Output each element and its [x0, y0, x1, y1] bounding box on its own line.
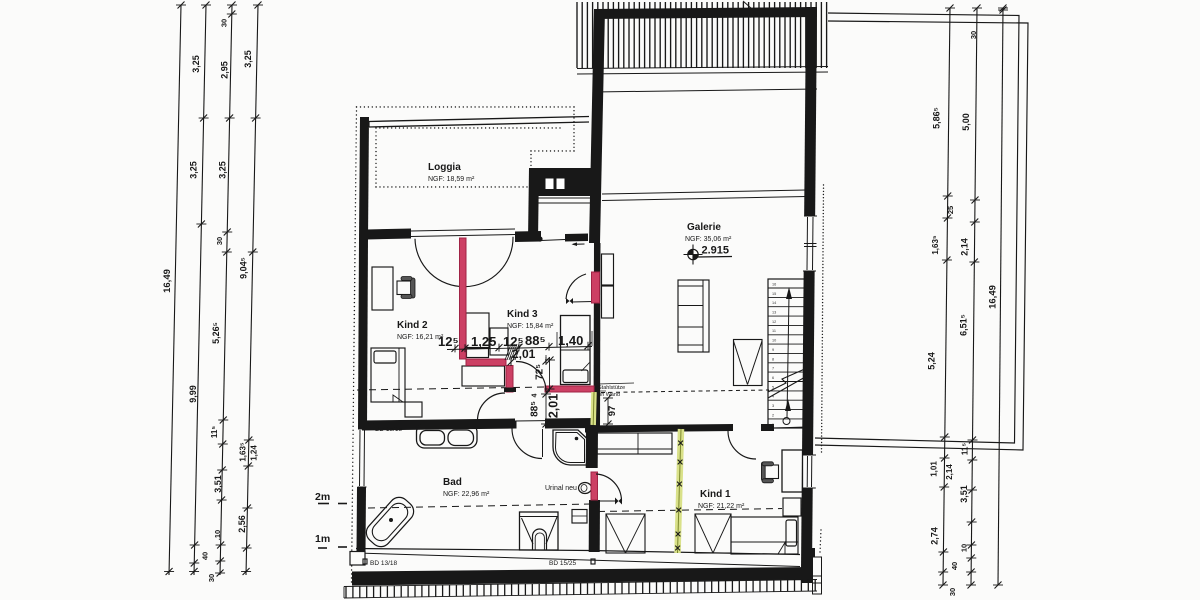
svg-text:11: 11: [772, 329, 776, 333]
svg-text:5,00: 5,00: [961, 113, 971, 131]
svg-text:3: 3: [772, 404, 774, 408]
svg-text:NGF: 18,59 m²: NGF: 18,59 m²: [428, 176, 475, 183]
svg-text:4: 4: [532, 393, 539, 397]
svg-text:3,25: 3,25: [191, 55, 201, 73]
svg-text:2,14: 2,14: [960, 238, 970, 256]
svg-text:2,74: 2,74: [930, 527, 940, 545]
svg-text:NGF: 22,96 m²: NGF: 22,96 m²: [443, 491, 490, 498]
svg-text:88⁵: 88⁵: [530, 401, 541, 417]
svg-text:12⁵: 12⁵: [438, 334, 459, 349]
svg-text:40: 40: [950, 562, 959, 570]
svg-text:Kind 3: Kind 3: [507, 309, 538, 320]
svg-text:97: 97: [607, 406, 618, 417]
svg-text:1,40: 1,40: [558, 333, 583, 348]
svg-text:1,63⁵: 1,63⁵: [931, 235, 940, 255]
svg-text:BD 15/15: BD 15/15: [375, 426, 402, 433]
svg-text:12: 12: [772, 320, 776, 324]
svg-text:1,24: 1,24: [250, 445, 259, 461]
svg-text:9,99: 9,99: [188, 385, 198, 403]
svg-text:Stahlstütze: Stahlstütze: [598, 385, 625, 391]
svg-text:2m: 2m: [315, 491, 330, 503]
svg-text:1m: 1m: [315, 533, 330, 545]
svg-text:6,51⁵: 6,51⁵: [959, 314, 969, 336]
svg-text:88⁵: 88⁵: [525, 333, 546, 348]
svg-text:NGF: 21,22 m²: NGF: 21,22 m²: [698, 503, 745, 510]
svg-text:10: 10: [959, 544, 968, 552]
svg-text:30: 30: [207, 574, 216, 582]
svg-text:30: 30: [215, 237, 224, 245]
svg-text:Loggia: Loggia: [428, 162, 461, 173]
svg-text:2,01: 2,01: [547, 394, 561, 418]
svg-text:1,25: 1,25: [471, 334, 496, 349]
svg-text:NGF: 15,84 m²: NGF: 15,84 m²: [507, 323, 554, 330]
svg-text:NGF: 16,21 m²: NGF: 16,21 m²: [397, 334, 444, 341]
svg-text:2: 2: [772, 413, 774, 417]
svg-text:2,95: 2,95: [220, 61, 230, 79]
svg-text:13: 13: [772, 311, 776, 315]
svg-text:BD 13/18: BD 13/18: [370, 560, 397, 567]
svg-text:2,56: 2,56: [237, 515, 247, 533]
svg-text:2.915: 2.915: [702, 245, 730, 257]
svg-text:9,04⁵: 9,04⁵: [238, 257, 248, 279]
svg-text:Kind 2: Kind 2: [397, 320, 428, 331]
svg-text:11⁵: 11⁵: [210, 426, 219, 438]
svg-text:14: 14: [772, 301, 776, 305]
svg-text:Bad: Bad: [443, 477, 462, 488]
svg-text:7: 7: [772, 367, 774, 371]
svg-text:1,01: 1,01: [929, 461, 938, 477]
svg-text:2,14: 2,14: [945, 464, 954, 480]
svg-text:Urinal neu: Urinal neu: [545, 485, 577, 492]
svg-text:Galerie: Galerie: [687, 222, 721, 233]
svg-text:16: 16: [772, 283, 776, 287]
svg-text:15: 15: [772, 292, 776, 296]
svg-text:3,25: 3,25: [218, 161, 228, 179]
svg-text:5,24: 5,24: [927, 352, 937, 370]
svg-text:NGF: 35,06 m²: NGF: 35,06 m²: [685, 236, 732, 243]
svg-text:72⁵: 72⁵: [535, 364, 546, 380]
svg-text:30: 30: [969, 31, 978, 39]
svg-text:3,25: 3,25: [243, 50, 253, 68]
svg-text:3,25: 3,25: [189, 161, 199, 179]
svg-text:6: 6: [772, 376, 774, 380]
svg-text:1: 1: [772, 423, 774, 427]
svg-text:in Wand: in Wand: [600, 392, 620, 398]
svg-text:40: 40: [200, 552, 209, 560]
svg-text:1,63⁵: 1,63⁵: [239, 442, 248, 462]
svg-text:16,49: 16,49: [987, 285, 998, 309]
svg-text:10: 10: [772, 339, 776, 343]
svg-text:8: 8: [772, 357, 774, 361]
svg-text:25: 25: [946, 206, 955, 214]
svg-text:30: 30: [948, 588, 957, 596]
svg-text:Kind 1: Kind 1: [700, 489, 731, 500]
svg-text:5,26⁵: 5,26⁵: [211, 322, 221, 344]
svg-text:3,51: 3,51: [959, 485, 969, 503]
svg-text:3,51: 3,51: [213, 475, 223, 493]
svg-text:16,49: 16,49: [162, 269, 173, 293]
svg-text:BD 15/25: BD 15/25: [549, 560, 576, 567]
svg-text:.10: .10: [213, 530, 222, 540]
svg-text:9: 9: [772, 348, 774, 352]
svg-text:5,86⁵: 5,86⁵: [932, 107, 942, 129]
svg-text:30: 30: [220, 19, 229, 27]
